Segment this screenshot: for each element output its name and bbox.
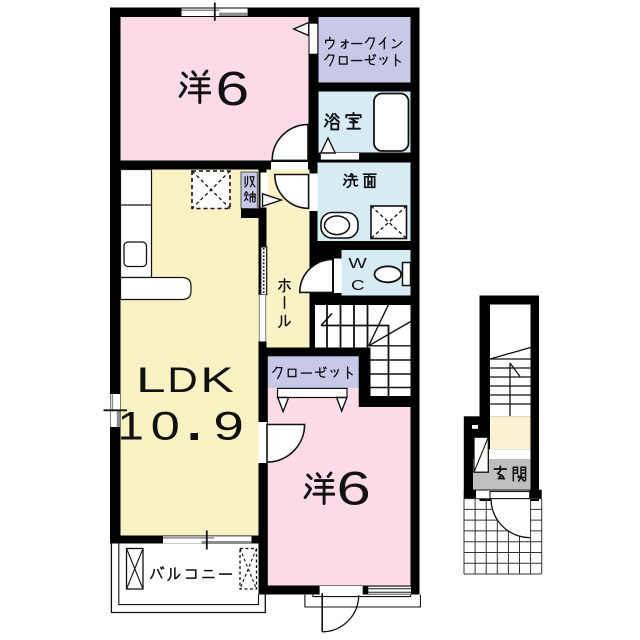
svg-text:6: 6 (337, 461, 371, 514)
svg-text:6: 6 (216, 61, 250, 116)
svg-text:0: 0 (151, 404, 180, 448)
svg-text:C: C (351, 277, 365, 294)
svg-text:K: K (200, 361, 234, 400)
svg-text:9: 9 (213, 405, 244, 449)
svg-text:W: W (348, 254, 367, 271)
svg-text:1: 1 (118, 405, 144, 448)
svg-text:D: D (167, 361, 197, 400)
svg-text:L: L (136, 360, 166, 400)
